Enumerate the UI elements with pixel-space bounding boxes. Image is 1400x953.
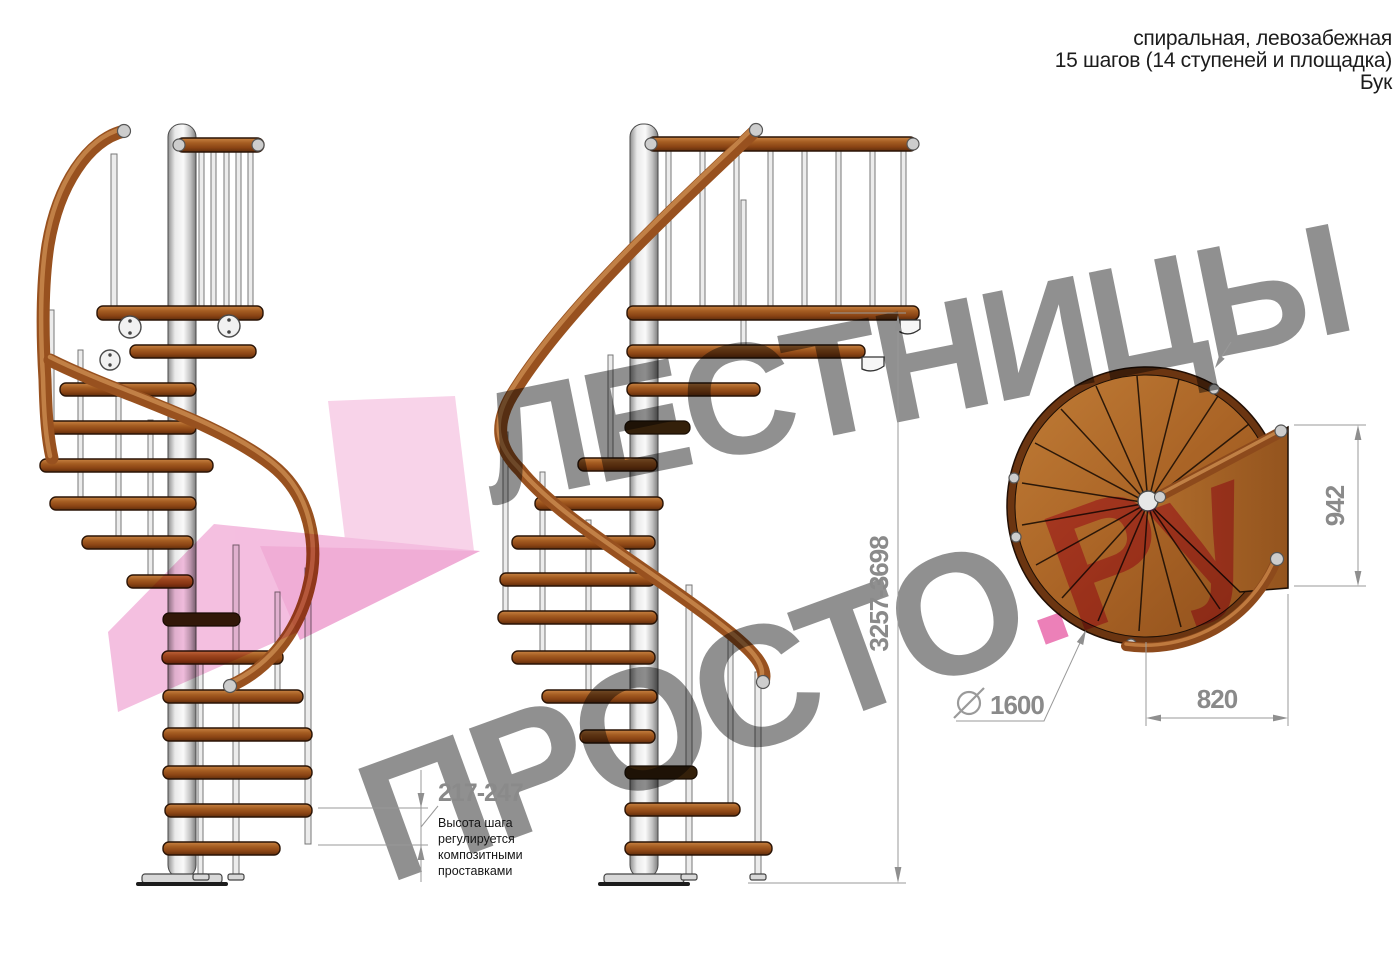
- left-landing-railing: [173, 138, 264, 152]
- spiral-staircase-drawing: ЛЕСТНИЦЫ ПРОСТО.Ру 3257-3698 217-247 Выс…: [0, 0, 1400, 953]
- note-line-1: Высота шага: [438, 816, 513, 830]
- center-landing-railing: [645, 137, 919, 151]
- title-type: спиральная, левозабежная: [1133, 27, 1392, 50]
- note-line-3: композитными: [438, 848, 523, 862]
- dim-landing-width-label: 820: [1197, 684, 1238, 714]
- title-block: спиральная, левозабежная 15 шагов (14 ст…: [1055, 27, 1393, 94]
- title-material: Бук: [1360, 71, 1393, 94]
- note-line-4: проставками: [438, 864, 512, 878]
- note-line-2: регулируется: [438, 832, 515, 846]
- dim-diameter-label: 1600: [990, 690, 1044, 720]
- dim-step-height-label: 217-247: [438, 779, 523, 807]
- elevation-view-left: [40, 124, 313, 886]
- dim-landing-depth-label: 942: [1320, 485, 1350, 526]
- watermark-arrow-logo: [108, 396, 480, 712]
- dim-total-height-label: 3257-3698: [864, 536, 894, 652]
- technical-drawing-page: ЛЕСТНИЦЫ ПРОСТО.Ру 3257-3698 217-247 Выс…: [0, 0, 1400, 953]
- dim-landing-depth: 942: [1294, 425, 1366, 586]
- center-baluster-feet: [681, 874, 766, 880]
- title-steps: 15 шагов (14 ступеней и площадка): [1055, 49, 1392, 72]
